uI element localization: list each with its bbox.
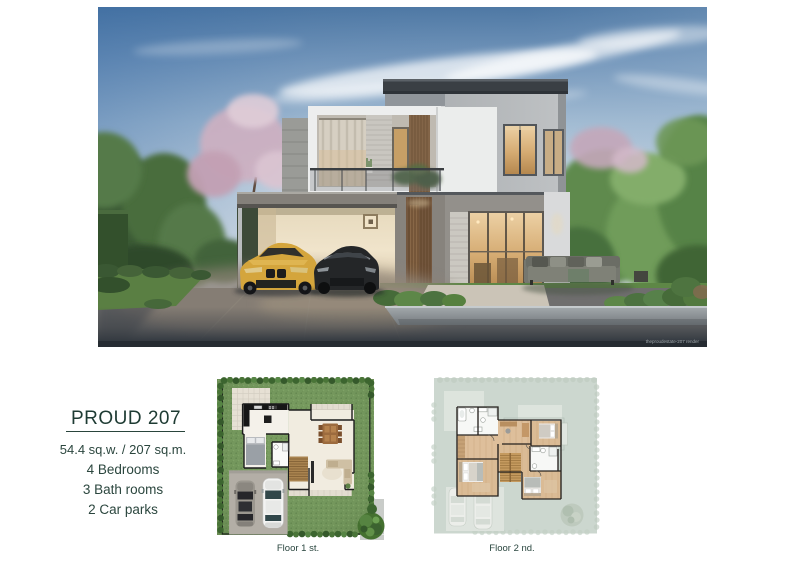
svg-text:theproudestate-207 render: theproudestate-207 render	[646, 339, 700, 344]
